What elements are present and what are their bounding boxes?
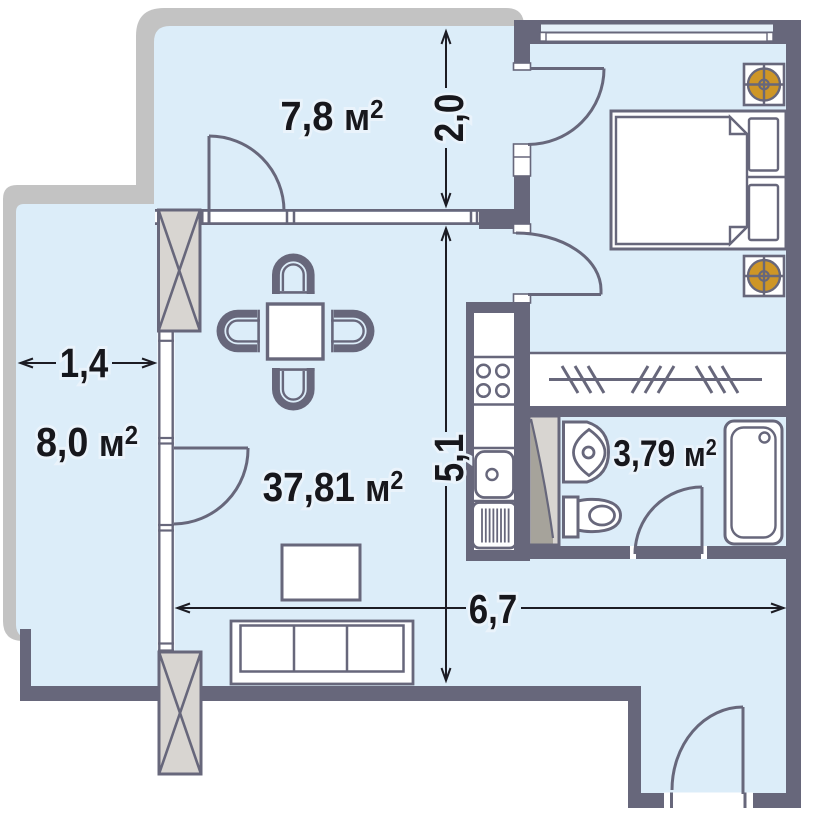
svg-text:2,0: 2,0: [427, 94, 472, 142]
svg-text:7,8 м2: 7,8 м2: [280, 94, 383, 140]
svg-text:37,81 м2: 37,81 м2: [263, 465, 404, 510]
svg-text:5,1: 5,1: [427, 434, 472, 482]
svg-text:3,79 м2: 3,79 м2: [613, 434, 716, 475]
svg-text:8,0 м2: 8,0 м2: [36, 420, 138, 466]
svg-text:6,7: 6,7: [469, 587, 517, 632]
svg-text:1,4: 1,4: [60, 341, 108, 386]
